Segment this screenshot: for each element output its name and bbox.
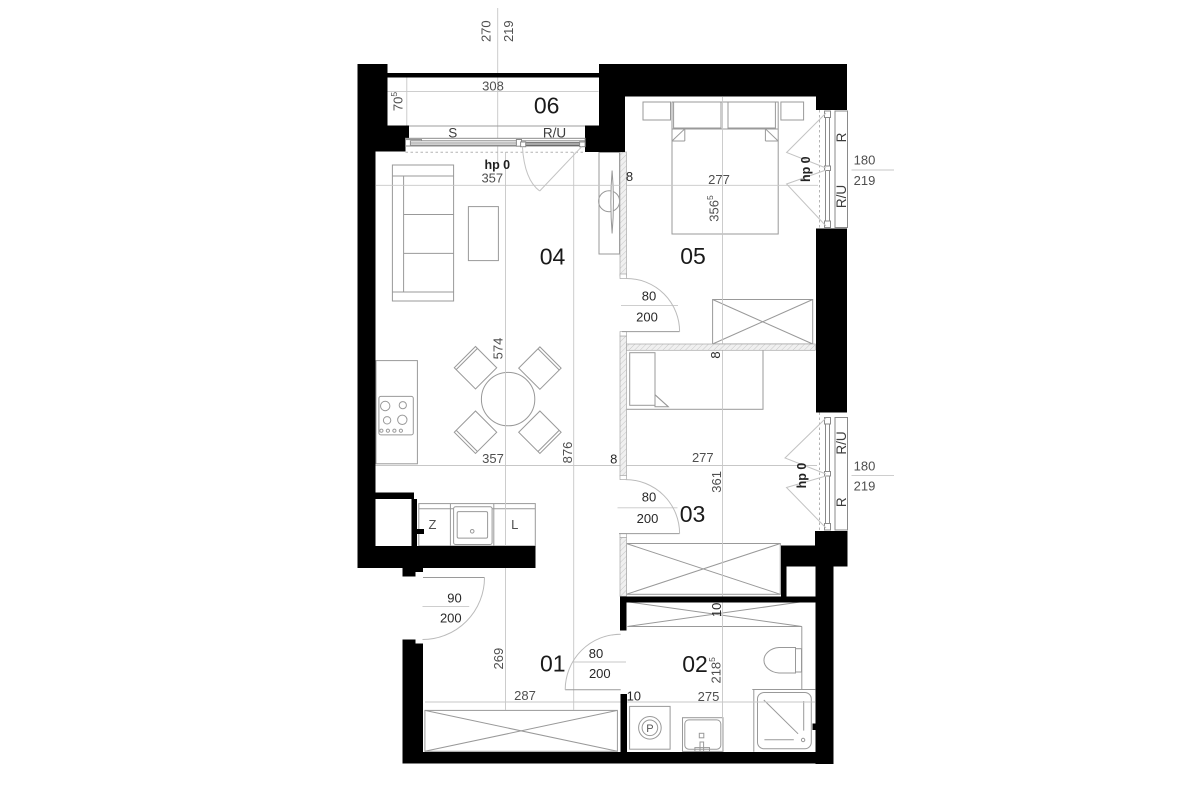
svg-text:80: 80 xyxy=(642,490,656,505)
svg-text:8: 8 xyxy=(708,351,723,358)
svg-text:R: R xyxy=(834,132,849,142)
svg-text:357: 357 xyxy=(481,171,503,186)
svg-text:80: 80 xyxy=(589,646,603,661)
svg-text:R/U: R/U xyxy=(543,125,566,140)
svg-text:R/U: R/U xyxy=(834,185,849,208)
svg-text:06: 06 xyxy=(534,93,560,119)
svg-text:04: 04 xyxy=(540,244,566,270)
svg-text:02: 02 xyxy=(682,651,708,677)
svg-text:R/U: R/U xyxy=(834,431,849,454)
svg-text:R: R xyxy=(834,497,849,507)
svg-text:574: 574 xyxy=(491,338,506,360)
svg-text:269: 269 xyxy=(491,648,506,670)
svg-text:200: 200 xyxy=(589,666,611,681)
svg-text:357: 357 xyxy=(482,451,504,466)
svg-text:03: 03 xyxy=(680,501,706,527)
svg-text:361: 361 xyxy=(709,471,724,493)
svg-text:219: 219 xyxy=(501,20,516,42)
svg-text:hp 0: hp 0 xyxy=(795,463,809,489)
svg-text:L: L xyxy=(511,517,518,532)
svg-text:270: 270 xyxy=(479,20,494,42)
svg-text:S: S xyxy=(448,125,457,140)
svg-text:876: 876 xyxy=(560,442,575,464)
svg-text:180: 180 xyxy=(854,153,876,168)
svg-text:200: 200 xyxy=(440,611,462,626)
svg-text:80: 80 xyxy=(642,289,656,304)
svg-text:275: 275 xyxy=(698,689,720,704)
svg-text:10: 10 xyxy=(709,603,724,617)
svg-text:Z: Z xyxy=(429,517,437,532)
svg-text:8: 8 xyxy=(626,169,633,184)
svg-text:P: P xyxy=(646,723,653,735)
svg-text:05: 05 xyxy=(680,243,706,269)
svg-text:219: 219 xyxy=(854,479,876,494)
svg-text:277: 277 xyxy=(692,450,714,465)
svg-text:308: 308 xyxy=(482,79,504,94)
svg-text:hp 0: hp 0 xyxy=(799,156,813,182)
svg-text:287: 287 xyxy=(514,688,536,703)
svg-text:10: 10 xyxy=(627,688,641,703)
svg-text:219: 219 xyxy=(854,173,876,188)
svg-text:277: 277 xyxy=(708,172,730,187)
svg-text:90: 90 xyxy=(447,591,461,606)
svg-text:8: 8 xyxy=(610,452,617,467)
svg-text:200: 200 xyxy=(637,511,659,526)
svg-text:200: 200 xyxy=(636,310,658,325)
svg-text:180: 180 xyxy=(854,459,876,474)
svg-text:01: 01 xyxy=(540,651,566,677)
